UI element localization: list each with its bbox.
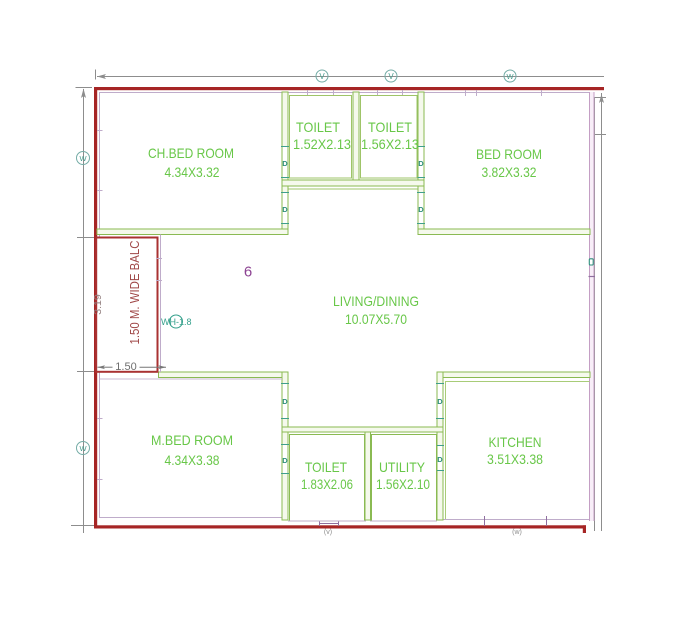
svg-text:1.50: 1.50 <box>115 361 136 373</box>
svg-text:3.82X3.32: 3.82X3.32 <box>482 164 537 180</box>
svg-text:V: V <box>319 72 325 81</box>
svg-text:D: D <box>437 455 443 464</box>
svg-text:TOILET: TOILET <box>368 119 412 135</box>
svg-text:W: W <box>79 154 87 163</box>
svg-text:3.51X3.38: 3.51X3.38 <box>487 451 543 467</box>
svg-text:WH-1.8: WH-1.8 <box>161 317 192 327</box>
svg-text:6: 6 <box>244 264 252 281</box>
svg-text:(v): (v) <box>324 529 332 536</box>
svg-text:4.34X3.32: 4.34X3.32 <box>165 164 220 180</box>
svg-text:KITCHEN: KITCHEN <box>489 434 542 450</box>
svg-text:1.83X2.06: 1.83X2.06 <box>301 476 353 492</box>
svg-text:BED ROOM: BED ROOM <box>476 146 542 162</box>
svg-text:1.56X2.10: 1.56X2.10 <box>376 476 430 492</box>
svg-text:10.07X5.70: 10.07X5.70 <box>345 311 407 327</box>
svg-text:D: D <box>437 397 443 406</box>
svg-text:LIVING/DINING: LIVING/DINING <box>333 293 419 309</box>
svg-text:CH.BED ROOM: CH.BED ROOM <box>148 145 234 161</box>
svg-text:D: D <box>418 205 424 214</box>
svg-text:M.BED ROOM: M.BED ROOM <box>151 432 233 448</box>
svg-text:D: D <box>418 159 424 168</box>
svg-text:UTILITY: UTILITY <box>379 459 426 475</box>
svg-text:W: W <box>506 72 514 81</box>
svg-text:D: D <box>282 205 288 214</box>
svg-text:(w): (w) <box>512 529 522 536</box>
svg-text:1.52X2.13: 1.52X2.13 <box>293 136 351 152</box>
svg-text:1.50 M. WIDE BALC: 1.50 M. WIDE BALC <box>127 240 142 344</box>
svg-text:D: D <box>282 397 288 406</box>
svg-text:TOILET: TOILET <box>305 459 347 475</box>
svg-text:W: W <box>79 444 87 453</box>
svg-text:4.34X3.38: 4.34X3.38 <box>165 452 220 468</box>
svg-text:D: D <box>282 159 288 168</box>
svg-text:V: V <box>388 72 394 81</box>
svg-text:1.56X2.13: 1.56X2.13 <box>361 136 419 152</box>
svg-text:TOILET: TOILET <box>296 119 340 135</box>
svg-text:D: D <box>282 456 288 465</box>
svg-text:3.19: 3.19 <box>92 294 104 315</box>
